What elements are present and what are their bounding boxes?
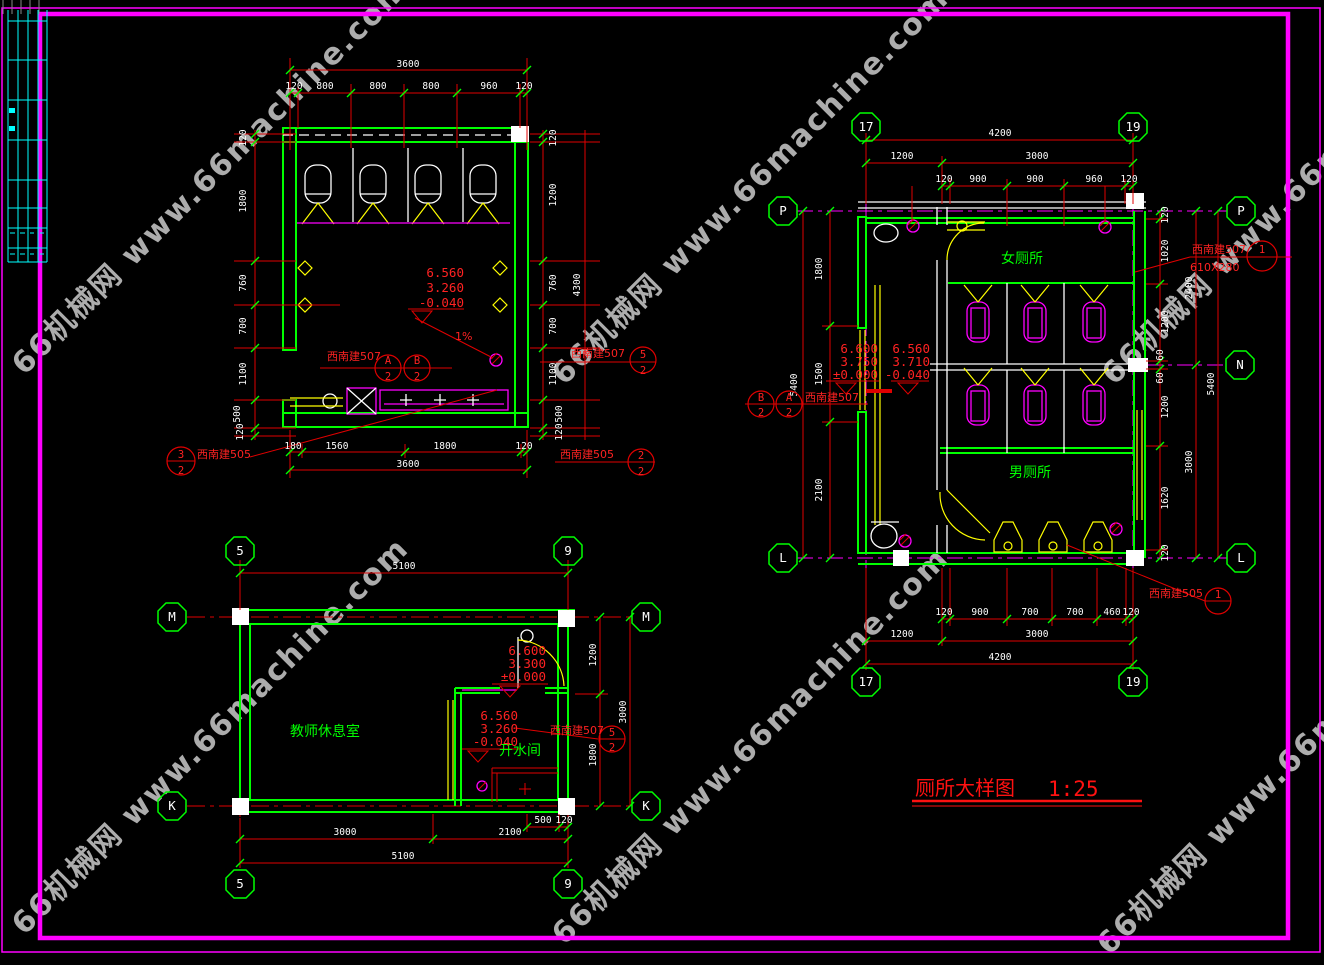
- level-label: 6.560: [426, 265, 464, 280]
- dim-label: 120: [238, 129, 249, 146]
- grid-bubble-label: 19: [1125, 119, 1140, 134]
- dim-label: 4200: [989, 652, 1012, 663]
- level-bar: [866, 389, 892, 393]
- grid-bubble-label: 17: [858, 119, 873, 134]
- ref-size-label: 610X280: [1190, 261, 1240, 274]
- ref-label: 西南建505: [560, 447, 614, 461]
- dim-label: 120: [548, 129, 559, 146]
- dim-label: 4200: [989, 128, 1012, 139]
- level-label: -0.040: [419, 295, 464, 310]
- dim-label: 4300: [572, 273, 583, 296]
- dim-label: 120: [235, 423, 246, 440]
- dim-label: 120: [1122, 607, 1139, 618]
- dim-label: 960: [1085, 174, 1102, 185]
- ref-label: 西南建505: [197, 447, 251, 461]
- dim-label: 3000: [334, 827, 357, 838]
- dim-label: 3600: [397, 59, 420, 70]
- dim-label: 3000: [618, 700, 629, 723]
- dim-label: 2100: [499, 827, 522, 838]
- bubble-number: 2: [758, 407, 764, 419]
- dim-label: 120: [1160, 544, 1171, 561]
- column: [1126, 550, 1144, 566]
- floor-box-cross: [347, 388, 376, 414]
- sheet-border-inner: [40, 14, 1288, 938]
- column: [558, 610, 575, 627]
- level-label: 3.260: [426, 280, 464, 295]
- level-label: -0.040: [885, 367, 930, 382]
- dim-label: 500: [534, 815, 551, 826]
- ref-label: 西南建507: [327, 349, 381, 363]
- dim-label: 120: [554, 423, 565, 440]
- grid-bubble-label: L: [779, 550, 787, 565]
- grid-bubble-label: L: [1237, 550, 1245, 565]
- dim-label: 1200: [1160, 310, 1171, 333]
- dim-label: 500: [554, 405, 565, 422]
- column: [232, 798, 249, 815]
- grid-bubble-label: 5: [236, 876, 244, 891]
- grid-bubble-label: 9: [564, 876, 572, 891]
- counter: [492, 768, 558, 802]
- top-wall: [858, 202, 1146, 208]
- bubble-number: 2: [385, 371, 391, 383]
- dim-label: 1200: [891, 151, 914, 162]
- dim-label: 120: [935, 174, 952, 185]
- dim-label: 2400: [1184, 276, 1195, 299]
- ref-label: 西南建507: [1192, 242, 1246, 256]
- water-lines: [302, 203, 499, 224]
- dim-label: 1020: [1160, 239, 1171, 262]
- bubble-number: 5: [609, 727, 615, 739]
- drawing-title-text: 厕所大样图: [915, 776, 1015, 800]
- dim-label: 3000: [1184, 450, 1195, 473]
- dim-label: 5400: [1206, 372, 1217, 395]
- dim-label: 120: [555, 815, 572, 826]
- title-block-mark: [9, 126, 15, 131]
- bubble-number: 5: [640, 349, 646, 361]
- walls: [283, 128, 528, 427]
- dim-label: 1200: [1160, 395, 1171, 418]
- wall-fixtures: [298, 261, 507, 312]
- grid-bubble-label: M: [168, 609, 176, 624]
- dim-label: 1620: [1160, 486, 1171, 509]
- sheet-border-outer: [2, 8, 1320, 952]
- bubble-number: 1: [1259, 244, 1265, 256]
- bubble-number: 2: [414, 371, 420, 383]
- level-label: ±0.000: [833, 367, 878, 382]
- dim-label: 1200: [548, 183, 559, 206]
- dim-label: 760: [238, 274, 249, 291]
- dim-label: 800: [422, 81, 439, 92]
- grid-bubble-label: P: [779, 203, 787, 218]
- column: [1126, 193, 1144, 209]
- level-label: -0.040: [473, 734, 518, 749]
- wash-basin: [871, 524, 897, 548]
- column: [511, 126, 529, 142]
- plan-top-left: 3600 120 800 800 800 960 120 120 1800 76…: [167, 58, 656, 478]
- bubble-number: A: [385, 355, 392, 367]
- bubble-number: B: [758, 392, 764, 404]
- bubble-number: 1: [1215, 589, 1221, 601]
- room-label-women: 女厕所: [1001, 250, 1043, 267]
- dim-label: 120: [1120, 174, 1137, 185]
- dim-label: 800: [369, 81, 386, 92]
- bubble-number: 2: [638, 450, 644, 462]
- column: [232, 608, 249, 625]
- dim-label: 900: [971, 607, 988, 618]
- wash-basin: [874, 224, 898, 242]
- dim-label: 5100: [392, 851, 415, 862]
- dim-label: 120: [515, 81, 532, 92]
- column: [893, 550, 909, 566]
- dim-label: 2100: [814, 478, 825, 501]
- bubble-number: 2: [786, 407, 792, 419]
- ref-label: 西南建505: [1149, 586, 1203, 600]
- dim-label: 5100: [393, 561, 416, 572]
- dim-label: 120: [285, 81, 302, 92]
- dim-label: 800: [316, 81, 333, 92]
- room-label-lounge: 教师休息室: [290, 723, 360, 740]
- dim-label: 60: [1155, 372, 1166, 384]
- dim-label: 1200: [588, 643, 599, 666]
- drawing-scale: 1:25: [1048, 777, 1099, 801]
- dim-label: 60: [1155, 349, 1166, 361]
- dim-label: 120: [515, 441, 532, 452]
- bubble-number: 2: [638, 466, 644, 478]
- dim-label: 1100: [548, 362, 559, 385]
- squat-pans: [305, 165, 496, 203]
- bubble-number: B: [414, 355, 420, 367]
- plan-right: 17 19 P P N L L 17 19 女厕所 男厕所 4200 1200 …: [515, 0, 1292, 696]
- dim-label: 1800: [588, 743, 599, 766]
- dim-label: 180: [284, 441, 301, 452]
- column: [558, 798, 575, 815]
- dim-label: 1500: [814, 362, 825, 385]
- dim-label: 3000: [1026, 629, 1049, 640]
- dim-label: 1100: [238, 362, 249, 385]
- ref-label: 西南建507: [550, 723, 604, 737]
- dim-label: 760: [548, 274, 559, 291]
- ref-label: 西南建507: [805, 390, 859, 404]
- title-block-mark: [9, 108, 15, 113]
- dim-label: 460: [1103, 607, 1120, 618]
- stall-partitions: [353, 148, 463, 222]
- dim-label: 3000: [1026, 151, 1049, 162]
- grid-bubble-label: 19: [1125, 674, 1140, 689]
- grid-bubble-label: 5: [236, 543, 244, 558]
- room-label-men: 男厕所: [1009, 465, 1051, 481]
- grid-bubble-label: 9: [564, 543, 572, 558]
- slope-label: 1%: [455, 330, 472, 343]
- grid-bubble-label: K: [642, 798, 650, 813]
- floor-drains: [899, 219, 1122, 547]
- dim-label: 700: [1021, 607, 1038, 618]
- grid-bubble-label: P: [1237, 203, 1245, 218]
- dim-label: 900: [1026, 174, 1043, 185]
- cad-drawing-canvas: 66机械网 www.66machine.com 66机械网 www.66mach…: [0, 0, 1324, 965]
- level-label: ±0.000: [501, 669, 546, 684]
- plan-bottom-left: 5 9 M M K K 5 9 教师休息室 开水间 5100 1200 1800…: [158, 537, 660, 898]
- dim-label: 700: [1066, 607, 1083, 618]
- drawing-svg: 3600 120 800 800 800 960 120 120 1800 76…: [0, 0, 1324, 965]
- dim-label: 960: [480, 81, 497, 92]
- bubble-number: 2: [609, 742, 615, 754]
- bubble-number: 2: [178, 465, 184, 477]
- grid-bubble-label: 17: [858, 674, 873, 689]
- dim-label: 3600: [397, 459, 420, 470]
- dim-label: 500: [232, 405, 243, 422]
- bubble-number: 3: [178, 449, 184, 461]
- drawing-title: 厕所大样图 1:25: [912, 776, 1142, 806]
- dim-label: 1560: [326, 441, 349, 452]
- dim-label: 1200: [891, 629, 914, 640]
- dim-label: 1800: [814, 257, 825, 280]
- dim-label: 120: [1160, 206, 1171, 223]
- urinals: [994, 522, 1112, 552]
- dim-label: 700: [238, 317, 249, 334]
- pipe-chase: [448, 700, 453, 800]
- dim-label: 1800: [238, 189, 249, 212]
- dim-label: 120: [935, 607, 952, 618]
- grid-bubble-label: M: [642, 609, 650, 624]
- door-leaf: [290, 398, 343, 406]
- windows: [860, 285, 1142, 525]
- grid-bubble-label: K: [168, 798, 176, 813]
- bubble-number: 2: [640, 365, 646, 377]
- dim-label: 900: [969, 174, 986, 185]
- dim-label: 1800: [434, 441, 457, 452]
- floor-drain-hatch: [479, 782, 486, 789]
- dim-label: 700: [548, 317, 559, 334]
- grid-bubble-label: N: [1236, 357, 1244, 372]
- dimension-lines: [515, 0, 1292, 670]
- top-wall-inner: [866, 218, 1133, 223]
- bubble-number: A: [786, 392, 793, 404]
- ref-label: 西南建507: [571, 346, 625, 360]
